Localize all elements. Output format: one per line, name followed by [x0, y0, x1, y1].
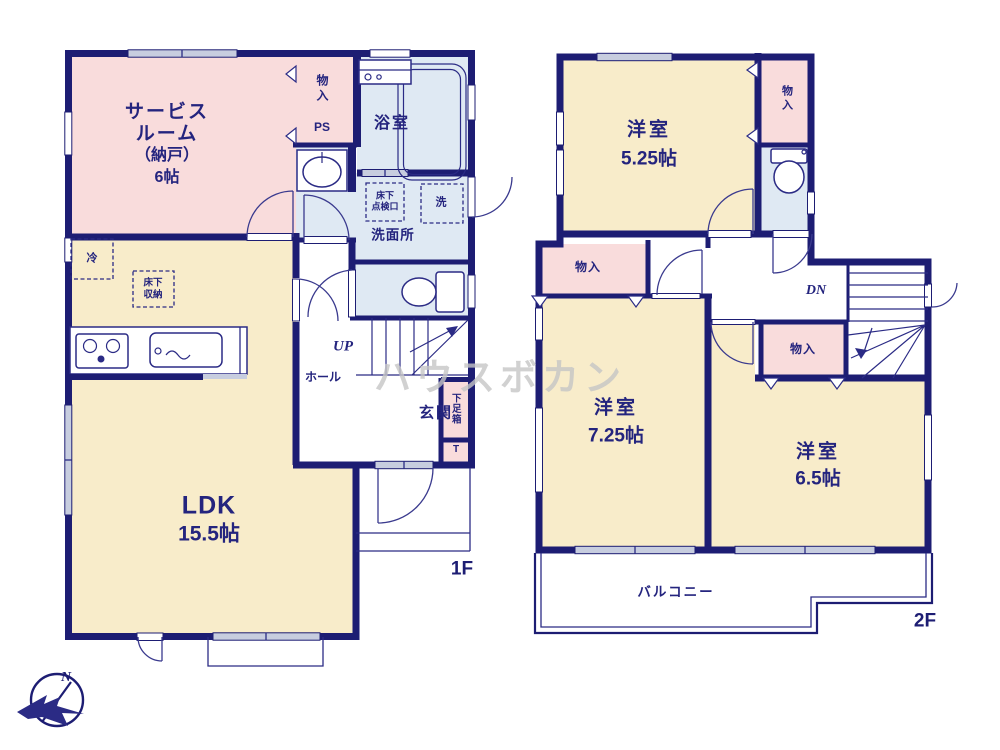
f1-ps-label: PS [314, 121, 330, 133]
floor2-plan [532, 53, 957, 633]
f1-laundry-label: 洗 [436, 198, 447, 209]
f2-stairs [848, 273, 928, 378]
f2-dn-label: DN [806, 284, 826, 298]
f1-shower-counter-icon [359, 60, 411, 84]
f1-washroom [352, 173, 472, 262]
f1-hatch-label-2: 点検口 [371, 203, 398, 212]
f1-entrance-label: 玄関 [419, 406, 453, 421]
compass-bird-icon [17, 695, 84, 726]
f1-floor-label: 1F [451, 560, 473, 579]
f2-bedroom65-label: 洋室 [796, 443, 840, 462]
f2-bedroom-525 [560, 57, 758, 234]
f2-closet-top-label: 物入 [781, 85, 792, 113]
f1-service-room-label-2: ルーム [136, 125, 198, 144]
f2-balcony-label: バルコニー [637, 585, 714, 599]
f1-ldk-size-label: 15.5帖 [178, 524, 240, 545]
f2-toilet-icon [771, 149, 807, 193]
f1-service-room [69, 54, 297, 238]
watermark: ハウスボカン [374, 347, 626, 401]
f1-washroom-label: 洗面所 [371, 228, 415, 242]
f2-bedroom725-label: 洋室 [594, 399, 638, 418]
f1-t-label: T [453, 445, 459, 455]
f2-balcony [535, 553, 932, 633]
f1-service-room-label-4: 6帖 [155, 170, 180, 186]
f2-bedroom525-label: 洋室 [627, 121, 671, 140]
floorplan-canvas: N サービス ルーム （納戸） 6帖 物入 PS 浴室 床下 点検口 洗 洗面所… [0, 0, 1000, 750]
f1-service-room-label-3: （納戸） [135, 148, 199, 164]
f2-bedroom65-size-label: 6.5帖 [795, 470, 840, 489]
f2-closet-left-label: 物入 [575, 261, 601, 273]
f1-fridge-label: 冷 [87, 254, 98, 265]
compass: N [17, 670, 84, 726]
f1-floor-storage-label-1: 床下 [143, 278, 162, 288]
f1-floor-storage-label-2: 収納 [143, 290, 162, 300]
f1-closet-label: 物入 [316, 74, 328, 104]
f1-up-label: UP [333, 340, 353, 355]
f2-bedroom-725 [539, 296, 708, 550]
f2-bedroom525-size-label: 5.25帖 [621, 150, 677, 169]
f1-kitchen-icon [68, 327, 247, 380]
compass-n-label: N [60, 670, 72, 685]
f1-service-room-label-1: サービス [125, 103, 209, 122]
f2-closet-mid-label: 物入 [790, 343, 816, 355]
f2-bedroom725-size-label: 7.25帖 [588, 427, 644, 446]
f1-bath-label: 浴室 [374, 116, 410, 132]
f2-floor-label: 2F [914, 612, 936, 631]
f1-ldk-label: LDK [182, 494, 236, 519]
f1-hatch-label-1: 床下 [376, 192, 394, 201]
f1-washbasin-icon [297, 150, 347, 191]
f1-hall-label: ホール [303, 371, 343, 383]
